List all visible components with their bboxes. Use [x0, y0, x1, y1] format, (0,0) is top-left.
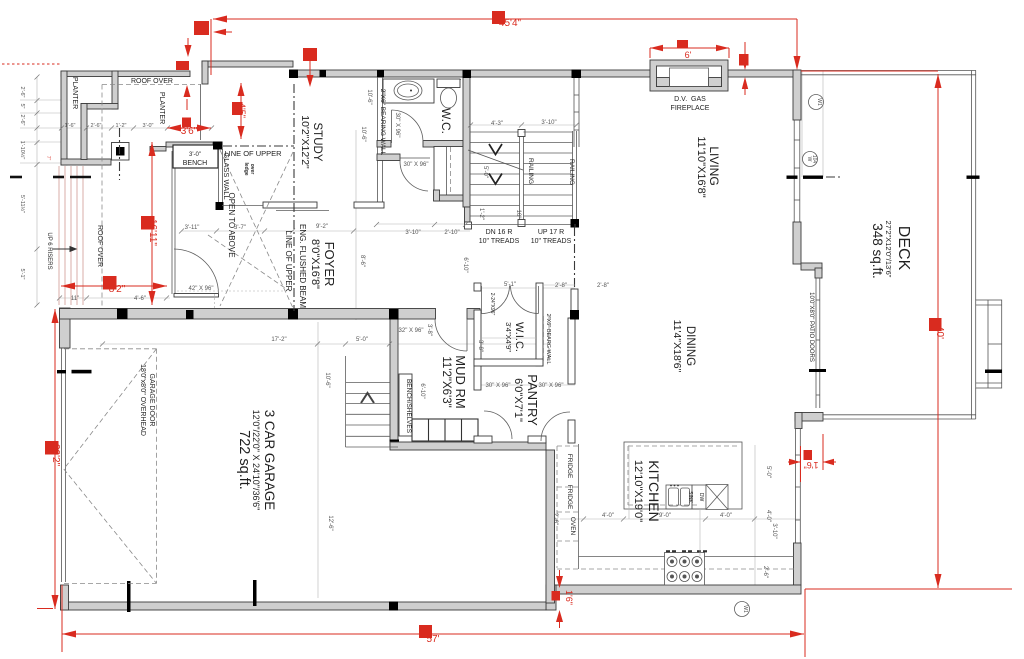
- svg-text:6': 6': [685, 50, 692, 60]
- svg-text:FRIDGE: FRIDGE: [566, 485, 573, 510]
- svg-text:2"X6" BEARG WALL: 2"X6" BEARG WALL: [545, 314, 551, 365]
- svg-text:11'2"X6'3": 11'2"X6'3": [440, 356, 452, 407]
- svg-text:17'-2": 17'-2": [271, 337, 286, 343]
- svg-text:104: 104: [811, 155, 817, 164]
- svg-text:6'0"X7'1": 6'0"X7'1": [512, 378, 524, 422]
- svg-text:SINK: SINK: [687, 491, 693, 503]
- svg-text:BENCH/SHELVES: BENCH/SHELVES: [405, 379, 412, 434]
- svg-text:5'-0": 5'-0": [765, 466, 771, 478]
- svg-text:GARAGE DOOR: GARAGE DOOR: [148, 374, 155, 427]
- svg-text:2'-10": 2'-10": [444, 230, 459, 236]
- svg-text:3'-10": 3'-10": [541, 120, 556, 126]
- svg-text:5'-1": 5'-1": [504, 282, 516, 288]
- svg-text:10'-6": 10'-6": [324, 372, 330, 387]
- svg-text:PANTRY: PANTRY: [525, 374, 540, 426]
- svg-text:10": 10": [515, 210, 521, 219]
- svg-text:LINE OF UPPER: LINE OF UPPER: [284, 231, 293, 292]
- svg-text:RAILING: RAILING: [527, 158, 534, 184]
- svg-text:12'-6": 12'-6": [327, 515, 333, 530]
- svg-text:10'-6": 10'-6": [360, 126, 366, 141]
- svg-text:DINING: DINING: [684, 326, 696, 366]
- svg-text:11'4"X18'6": 11'4"X18'6": [671, 320, 683, 373]
- svg-text:ledge: ledge: [243, 162, 249, 175]
- svg-text:STUDY: STUDY: [311, 123, 323, 162]
- svg-text:DW: DW: [698, 493, 704, 502]
- svg-text:3'6": 3'6": [181, 126, 198, 137]
- svg-text:3'-10": 3'-10": [405, 230, 420, 236]
- svg-text:6'-10": 6'-10": [462, 257, 468, 272]
- svg-text:1'-6": 1'-6": [65, 123, 76, 129]
- svg-text:4'-0": 4'-0": [765, 510, 771, 522]
- svg-text:18'0"x8'0" OVERHEAD: 18'0"x8'0" OVERHEAD: [139, 364, 146, 436]
- svg-text:11'10"X16'8": 11'10"X16'8": [695, 136, 707, 197]
- svg-text:FOYER: FOYER: [322, 242, 337, 287]
- svg-text:W.I.C.: W.I.C.: [513, 322, 525, 352]
- svg-text:1'6": 1'6": [804, 460, 819, 470]
- svg-text:2'-6": 2'-6": [19, 87, 25, 98]
- svg-text:30" X 96": 30" X 96": [486, 383, 511, 389]
- svg-text:PLANTER: PLANTER: [158, 92, 165, 124]
- svg-text:722 sq.ft.: 722 sq.ft.: [236, 430, 252, 490]
- svg-text:UP 6 RISERS: UP 6 RISERS: [46, 232, 52, 269]
- svg-text:BENCH: BENCH: [183, 160, 208, 167]
- svg-text:10" TREADS: 10" TREADS: [479, 238, 520, 245]
- svg-text:LIVING: LIVING: [707, 146, 721, 185]
- svg-text:5": 5": [19, 103, 25, 108]
- svg-text:2"X6" BEARING WALL: 2"X6" BEARING WALL: [379, 89, 386, 156]
- svg-text:10'-6": 10'-6": [366, 89, 372, 104]
- svg-text:11": 11": [71, 296, 79, 302]
- svg-text:W1: W1: [742, 605, 748, 613]
- svg-text:D.V. GAS: D.V. GAS: [674, 96, 706, 103]
- svg-text:W.C.: W.C.: [439, 108, 453, 134]
- svg-text:6'-10": 6'-10": [419, 383, 425, 398]
- svg-text:3'-11": 3'-11": [185, 225, 200, 231]
- svg-text:RAILING: RAILING: [568, 159, 575, 185]
- svg-text:7": 7": [45, 156, 51, 161]
- svg-text:3'4"X4'9": 3'4"X4'9": [504, 322, 513, 352]
- svg-text:2'-6": 2'-6": [91, 123, 102, 129]
- svg-text:30" X 96": 30" X 96": [394, 113, 400, 138]
- svg-text:3 CAR GARAGE: 3 CAR GARAGE: [262, 410, 277, 511]
- svg-text:32" X 96": 32" X 96": [399, 328, 424, 334]
- svg-text:4'-3": 4'-3": [491, 121, 503, 127]
- svg-text:FRIDGE: FRIDGE: [566, 454, 573, 479]
- svg-text:OVEN: OVEN: [569, 517, 576, 536]
- svg-text:over: over: [249, 164, 255, 175]
- svg-text:8'0"X16'8": 8'0"X16'8": [309, 239, 321, 289]
- svg-text:12'10"X19'0": 12'10"X19'0": [632, 460, 644, 522]
- svg-text:4'-0": 4'-0": [602, 513, 614, 519]
- svg-text:3'-7": 3'-7": [234, 225, 246, 231]
- svg-text:5'-0": 5'-0": [482, 166, 488, 178]
- svg-text:UP 17 R: UP 17 R: [538, 229, 564, 236]
- svg-text:2-24"X96": 2-24"X96": [489, 293, 495, 316]
- svg-text:10" TREADS: 10" TREADS: [531, 238, 572, 245]
- svg-text:2'-6": 2'-6": [552, 513, 558, 525]
- svg-text:1'-2": 1'-2": [116, 123, 127, 129]
- svg-text:30" X 96": 30" X 96": [539, 383, 564, 389]
- svg-text:10'2"X12'2": 10'2"X12'2": [299, 115, 311, 169]
- svg-text:9'-2": 9'-2": [316, 224, 328, 230]
- svg-text:ROOF OVER: ROOF OVER: [96, 225, 103, 267]
- svg-text:3'-0": 3'-0": [189, 152, 201, 158]
- svg-text:2'-8": 2'-8": [555, 283, 567, 289]
- svg-text:3'-8": 3'-8": [426, 324, 432, 336]
- svg-text:LINE OF UPPER: LINE OF UPPER: [224, 149, 282, 158]
- svg-text:3'-0": 3'-0": [143, 123, 154, 129]
- svg-text:8'-6": 8'-6": [359, 255, 365, 267]
- svg-text:348 sq.ft.: 348 sq.ft.: [870, 223, 885, 279]
- svg-text:W1: W1: [816, 98, 822, 106]
- svg-text:5'-0": 5'-0": [356, 337, 368, 343]
- svg-text:2'-8": 2'-8": [597, 283, 609, 289]
- svg-text:PLANTER: PLANTER: [71, 77, 78, 109]
- svg-text:9'-0": 9'-0": [659, 513, 671, 519]
- svg-text:5'-1": 5'-1": [19, 269, 25, 280]
- svg-text:4'-6": 4'-6": [134, 296, 146, 302]
- svg-text:DN 16 R: DN 16 R: [486, 229, 513, 236]
- svg-text:MUD RM: MUD RM: [453, 355, 468, 408]
- svg-text:1'-2": 1'-2": [478, 208, 484, 220]
- svg-text:3'-10": 3'-10": [771, 523, 777, 538]
- svg-text:FIREPLACE: FIREPLACE: [671, 105, 710, 112]
- svg-text:42" X 96": 42" X 96": [189, 286, 214, 292]
- svg-text:DECK: DECK: [895, 226, 912, 271]
- svg-text:4'-0": 4'-0": [720, 513, 732, 519]
- svg-text:1'-10½": 1'-10½": [19, 141, 26, 160]
- svg-text:2'-6": 2'-6": [19, 115, 25, 126]
- svg-text:2'-6": 2'-6": [762, 566, 768, 578]
- svg-text:3'-8": 3'-8": [477, 340, 483, 352]
- svg-text:5'-11½": 5'-11½": [19, 195, 26, 213]
- svg-text:1'6": 1'6": [564, 590, 574, 605]
- svg-text:ENG. FLUSHED BEAM: ENG. FLUSHED BEAM: [298, 224, 307, 308]
- svg-text:ROOF OVER: ROOF OVER: [131, 78, 173, 85]
- svg-text:10'0"X8'0" PATIO DOORS: 10'0"X8'0" PATIO DOORS: [808, 292, 814, 362]
- svg-text:30" X 96": 30" X 96": [404, 162, 429, 168]
